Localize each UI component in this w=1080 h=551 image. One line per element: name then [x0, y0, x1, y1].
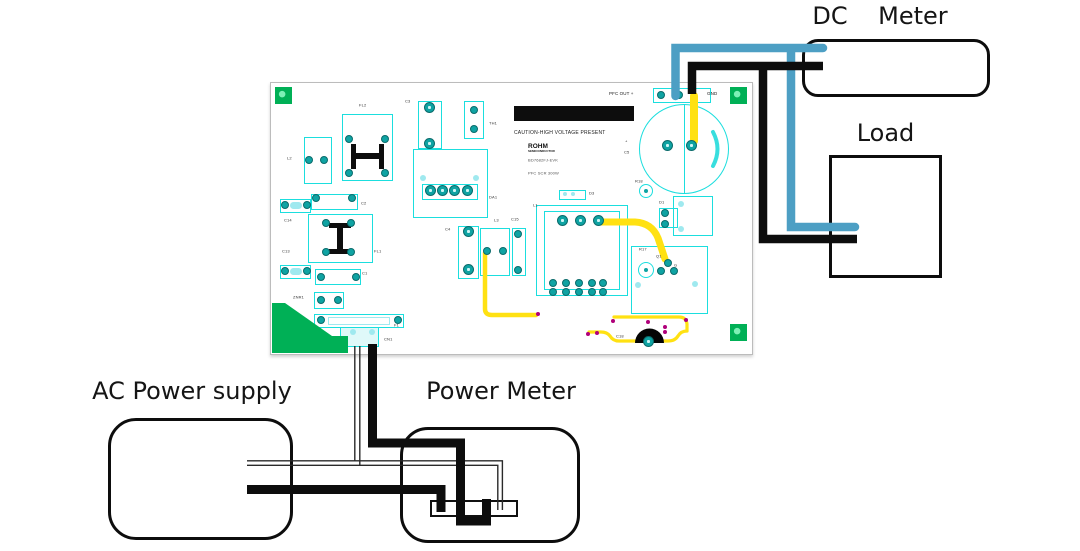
brand-logo: ROHM: [528, 142, 548, 150]
via-pad: [350, 329, 356, 335]
solder-pad: [549, 279, 557, 287]
solder-pad: [317, 316, 325, 324]
ac-power-supply-box: [108, 418, 293, 540]
solder-pad: [281, 267, 289, 275]
wiring-diagram: DC Meter Load AC Power supply Power Mete…: [0, 0, 1080, 551]
solder-pad: [322, 219, 330, 227]
solder-pad: [317, 296, 325, 304]
solder-pad: [317, 273, 325, 281]
C5-crescent: [713, 132, 718, 166]
pcb-board: L2 FL2 C3 TH1 C2 C14 C13 FL1 C1 ZNR1 F1 …: [270, 82, 753, 355]
caution-text: CAUTION-HIGH VOLTAGE PRESENT: [514, 130, 606, 136]
solder-pad: [661, 209, 669, 217]
solder-pad: [303, 201, 311, 209]
solder-pad: [347, 248, 355, 256]
solder-pad: [281, 201, 289, 209]
via-dot: [611, 319, 615, 323]
solder-pad: [588, 288, 596, 296]
solder-pad: [599, 279, 607, 287]
ref-ZNR1: ZNR1: [293, 295, 304, 300]
via-pad: [420, 175, 426, 181]
solder-pad: [664, 259, 672, 267]
solder-pad: [470, 106, 478, 114]
solder-pad: [575, 279, 583, 287]
solder-pad: [575, 288, 583, 296]
solder-pad: [312, 194, 320, 202]
solder-pad: [549, 288, 557, 296]
via-dot: [595, 331, 599, 335]
ref-G: G: [674, 263, 677, 268]
ref-CN1: CN1: [384, 337, 392, 342]
via-dot: [536, 312, 540, 316]
solder-pad: [449, 185, 460, 196]
terminal-positive-label: PFC OUT +: [609, 91, 633, 96]
ref-C1: C1: [362, 271, 367, 276]
solder-pad: [462, 185, 473, 196]
solder-pad: [599, 288, 607, 296]
ref-C5-polarity: +: [625, 139, 627, 144]
solder-pad: [424, 102, 435, 113]
solder-pad: [345, 135, 353, 143]
via-pad: [678, 201, 684, 207]
solder-pad: [425, 185, 436, 196]
solder-pad: [675, 91, 683, 99]
via-pad: [473, 175, 479, 181]
ref-L3: L3: [494, 218, 499, 223]
solder-pad: [657, 267, 665, 275]
terminal-negative-label: GND: [707, 91, 717, 96]
ref-D3: D3: [589, 191, 594, 196]
solder-pad: [305, 156, 313, 164]
solder-pad: [463, 226, 474, 237]
solder-pad: [347, 219, 355, 227]
solder-pad: [662, 140, 673, 151]
via-dot: [586, 332, 590, 336]
ref-C2: C2: [361, 201, 366, 206]
solder-pad: [575, 215, 586, 226]
solder-pad: [320, 156, 328, 164]
via-dot: [646, 320, 650, 324]
solder-pad: [588, 279, 596, 287]
solder-pad: [352, 273, 360, 281]
power-meter-terminal-block: [430, 500, 518, 517]
solder-pad: [686, 140, 697, 151]
via-pad: [563, 192, 567, 196]
ref-FL2: FL2: [359, 103, 366, 108]
ref-C18: C18: [616, 334, 624, 339]
solder-pad: [514, 266, 522, 274]
solder-pad: [463, 264, 474, 275]
solder-pad: [670, 267, 678, 275]
solder-pad: [381, 169, 389, 177]
ref-L1: L1: [533, 203, 538, 208]
ref-L2: L2: [287, 156, 292, 161]
brand-sub: SEMICONDUCTOR: [528, 150, 555, 153]
dc-meter-label: DC Meter: [784, 2, 976, 30]
board-line2: PFC SCR 300W: [528, 171, 559, 176]
solder-pad: [644, 189, 648, 193]
solder-pad: [424, 138, 435, 149]
solder-pad: [562, 279, 570, 287]
ref-R17: R17: [639, 247, 647, 252]
ref-F1: F1: [394, 323, 399, 328]
solder-pad: [303, 267, 311, 275]
ac-power-supply-label: AC Power supply: [77, 377, 307, 405]
ref-C13: C13: [282, 249, 290, 254]
via-pad: [678, 226, 684, 232]
solder-pad: [499, 247, 507, 255]
solder-pad: [593, 215, 604, 226]
load-box: [829, 155, 942, 278]
via-pad: [635, 282, 641, 288]
power-meter-label: Power Meter: [401, 377, 601, 405]
component-C13-body: [290, 268, 302, 275]
solder-pad: [470, 125, 478, 133]
board-line1: BD7682FJ-EVK: [528, 158, 558, 163]
ref-R18: R18: [635, 179, 643, 184]
solder-pad: [562, 288, 570, 296]
via-dot: [663, 325, 667, 329]
power-meter-box: [400, 427, 580, 543]
solder-pad: [514, 230, 522, 238]
solder-pad: [334, 296, 342, 304]
component-C14-body: [290, 202, 302, 209]
ref-DA1: DA1: [489, 195, 497, 200]
solder-pad: [483, 247, 491, 255]
ref-TH1: TH1: [489, 121, 497, 126]
solder-pad: [348, 194, 356, 202]
via-pad: [692, 281, 698, 287]
trace-L3: [485, 253, 536, 315]
via-pad: [369, 329, 375, 335]
ref-D1: D1: [659, 200, 664, 205]
ref-C3: C3: [405, 99, 410, 104]
via-pad: [571, 192, 575, 196]
ref-C14: C14: [284, 218, 292, 223]
ref-C15: C15: [511, 217, 519, 222]
via-dot: [663, 330, 667, 334]
solder-pad: [322, 248, 330, 256]
ref-C4: C4: [445, 227, 450, 232]
dc-meter-box: [802, 39, 990, 97]
ref-Q1: Q1: [656, 254, 662, 259]
via-dot: [684, 318, 688, 322]
solder-pad: [657, 91, 665, 99]
solder-pad: [644, 268, 648, 272]
solder-pad: [661, 220, 669, 228]
solder-pad: [643, 336, 654, 347]
ref-C5: C5: [624, 150, 629, 155]
load-label: Load: [829, 119, 942, 147]
solder-pad: [381, 135, 389, 143]
solder-pad: [437, 185, 448, 196]
solder-pad: [345, 169, 353, 177]
ref-FL1: FL1: [374, 249, 381, 254]
solder-pad: [557, 215, 568, 226]
